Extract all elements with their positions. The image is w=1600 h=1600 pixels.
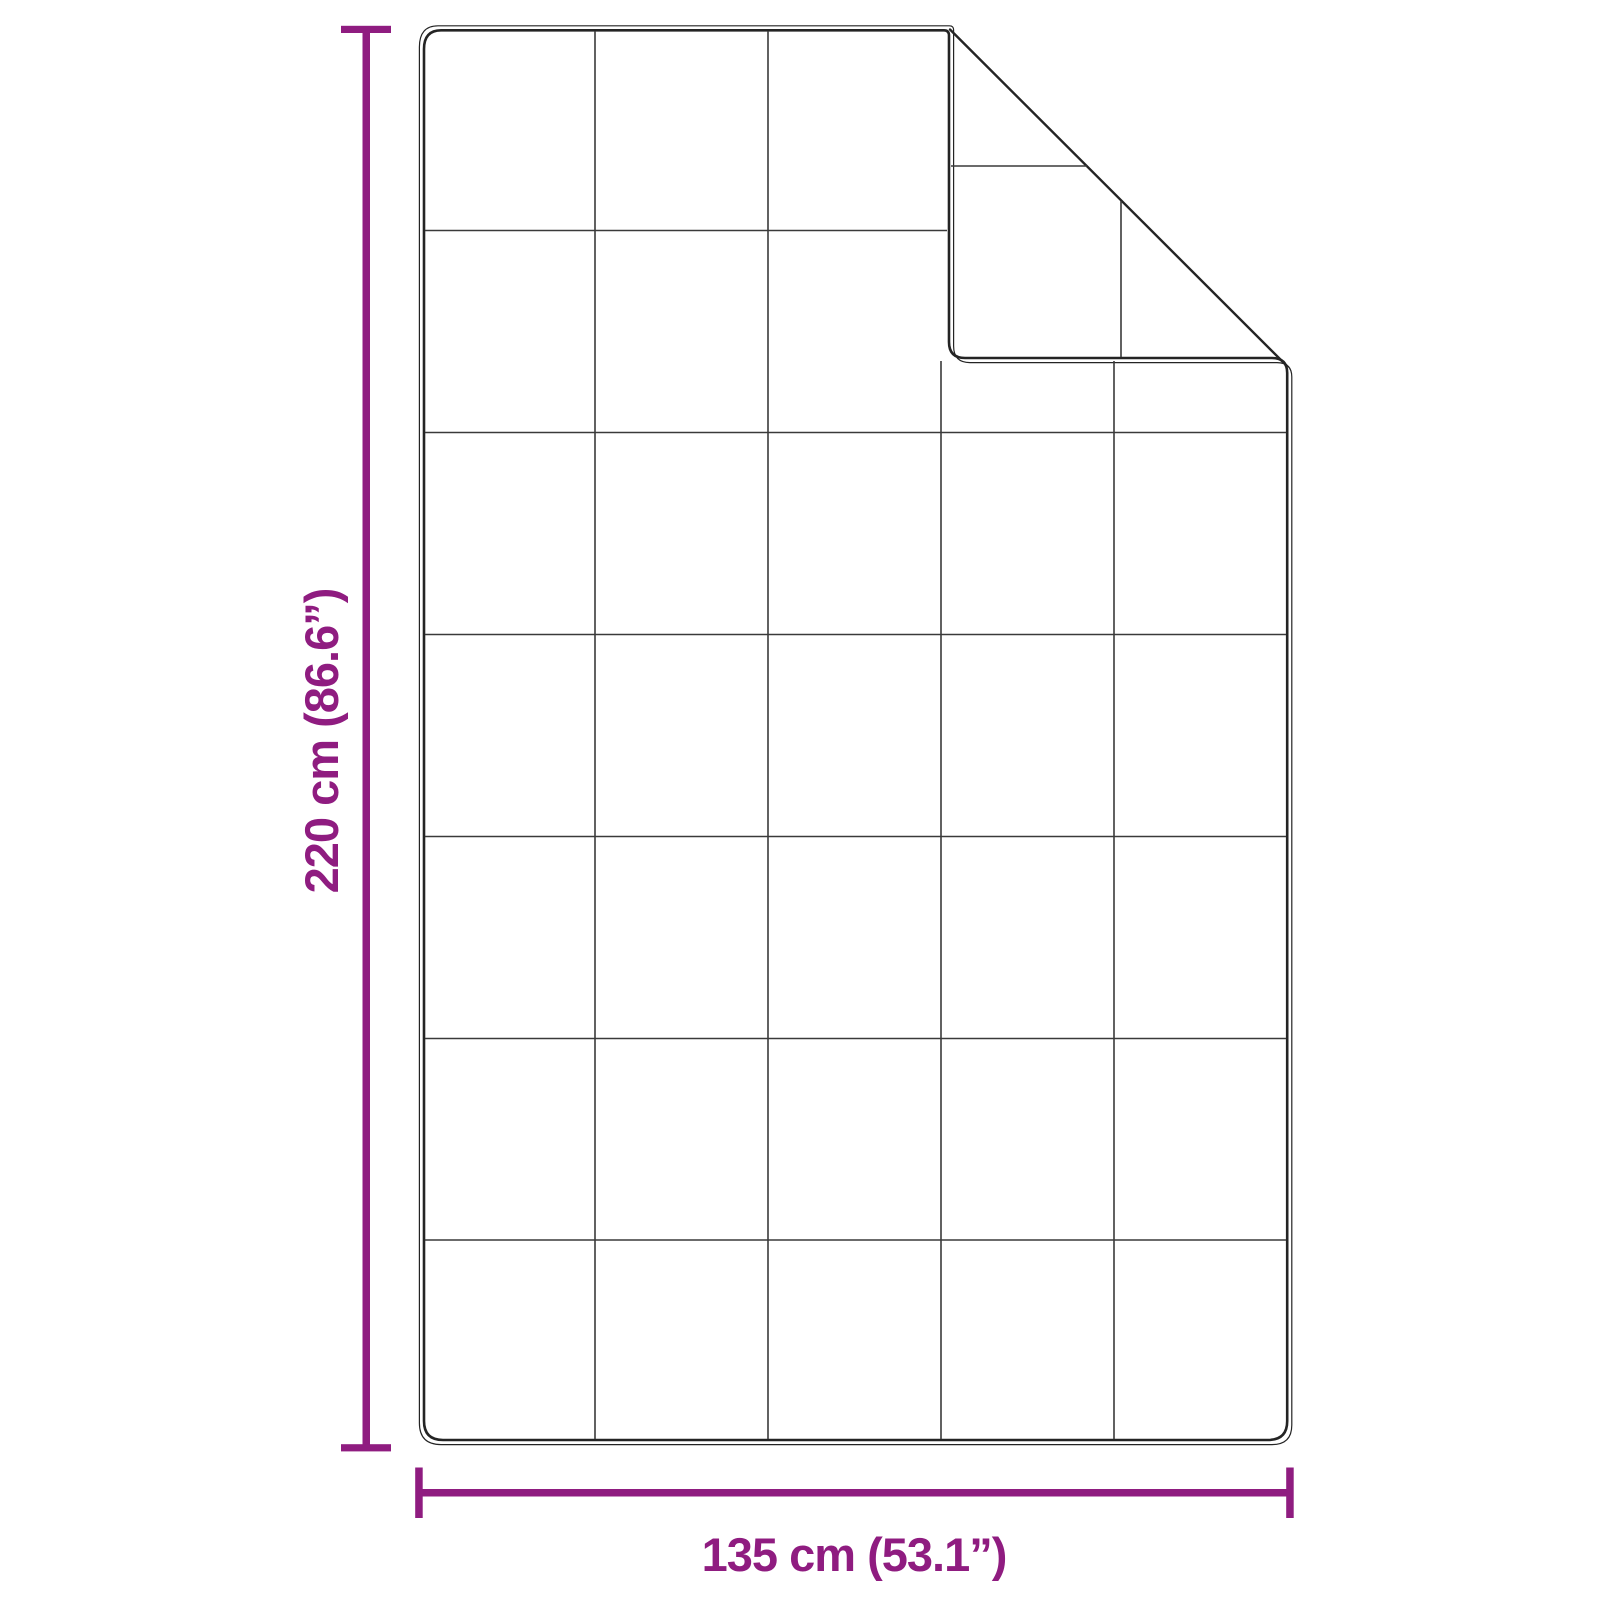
height-dimension-label: 220 cm (86.6”): [294, 241, 350, 1241]
blanket-outline-inner: [424, 30, 1287, 1440]
height-dim-line: [363, 29, 371, 1448]
blanket: [419, 26, 1291, 1445]
dimension-annotations: [341, 26, 1294, 1518]
width-dim-cap-left: [415, 1468, 423, 1519]
diagram-canvas: [0, 0, 1600, 1600]
width-dim-line: [419, 1489, 1290, 1497]
width-dimension-label: 135 cm (53.1”): [354, 1527, 1354, 1583]
height-dim-cap-bottom: [341, 1444, 391, 1451]
fold-diagonal-edge: [950, 30, 1287, 366]
product-dimension-diagram: 220 cm (86.6”) 135 cm (53.1”): [0, 0, 1600, 1600]
quilt-grid: [425, 31, 1286, 1439]
height-dim-cap-top: [341, 26, 391, 33]
width-dim-cap-right: [1286, 1468, 1294, 1519]
